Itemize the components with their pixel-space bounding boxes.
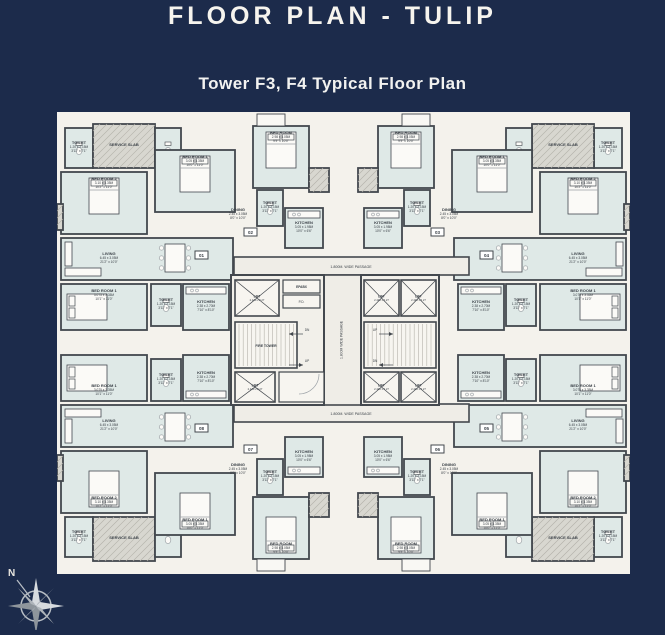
dining-table-icon <box>165 413 185 441</box>
pillow-icon <box>69 296 75 306</box>
room-label-bedroom1: 10'0" x 11'0" <box>186 163 203 167</box>
room-label-service_slab: SERVICE SLAB <box>548 535 578 540</box>
lift-label: 2.440 x 2.27 <box>248 387 263 391</box>
room-label-bedroom1b: 10'1" x 11'0" <box>95 392 112 396</box>
toilet-wc-icon <box>516 536 522 543</box>
pillow-icon <box>69 308 75 318</box>
passage-label-bottom: 1.800M. WIDE PASSAGE <box>330 412 372 416</box>
chair-icon <box>186 435 190 439</box>
unit-badge-number: 05 <box>484 426 490 431</box>
room-label-living: 21'2" x 10'0" <box>569 427 586 431</box>
dining-table-icon <box>502 413 522 441</box>
room-label-kitchen: 10'0" x 6'6" <box>296 458 312 462</box>
room-label-bedroom1b: 10'1" x 11'0" <box>95 297 112 301</box>
chair-icon <box>496 266 500 270</box>
room-label-dining: 8'0" x 10'0" <box>230 216 246 220</box>
room-label-living: 21'2" x 10'0" <box>100 427 117 431</box>
compass-icon <box>4 570 64 630</box>
pillow-icon <box>612 379 618 389</box>
chair-icon <box>523 435 527 439</box>
lift-label: LIFT <box>378 295 385 299</box>
compass-north-label: N <box>8 568 15 579</box>
dining-table-icon <box>165 244 185 272</box>
chair-icon <box>186 256 190 260</box>
room-label-bedroom1b: 10'1" x 11'0" <box>574 392 591 396</box>
passage-label-top: 1.800M. WIDE PASSAGE <box>330 265 372 269</box>
chair-icon <box>159 435 163 439</box>
room-label-service_slab: SERVICE SLAB <box>109 142 139 147</box>
chair-icon <box>159 256 163 260</box>
room-label-bedroom2: 10'2" x 11'0" <box>574 185 591 189</box>
core-lobby <box>279 372 324 402</box>
sofa-icon <box>65 409 101 417</box>
kitchen-counter-icon <box>461 287 501 294</box>
unit-badge-number: 06 <box>435 447 441 452</box>
chair-icon <box>159 266 163 270</box>
lift-label: LIFT <box>415 384 422 388</box>
room-label-toilet: 3'11" x 7'1" <box>409 478 424 482</box>
chair-icon <box>523 415 527 419</box>
toilet-wc-icon <box>165 536 171 543</box>
room <box>402 114 430 126</box>
basin-icon <box>165 142 171 146</box>
room-label-bedroom2: 10'2" x 11'0" <box>95 185 112 189</box>
sofa-icon <box>586 409 622 417</box>
room-label-bedroom_inner: 9'9" x 10'0" <box>273 139 289 143</box>
lift-label: 2.440 x 2.27 <box>411 387 426 391</box>
room-label-bedroom2: 10'2" x 11'0" <box>95 504 112 508</box>
chair-icon <box>496 435 500 439</box>
sofa-icon <box>65 419 72 443</box>
unit-badge-number: 02 <box>248 230 254 235</box>
room-label-dining: 8'0" x 10'0" <box>441 216 457 220</box>
lift-label: 2.440 x 2.27 <box>411 298 426 302</box>
unit-badge-number: 01 <box>199 253 205 258</box>
page-title: FLOOR PLAN - TULIP <box>0 0 665 31</box>
room-label-kitchen_b: 7'10" x 8'10" <box>472 308 489 312</box>
room-label-living: 21'2" x 10'0" <box>100 260 117 264</box>
room-label-toilet: 3'11" x 7'1" <box>262 478 277 482</box>
lift-label: 2.440 x 2.27 <box>250 298 265 302</box>
chair-icon <box>496 425 500 429</box>
dn-label: DN <box>373 359 378 363</box>
room-label-kitchen_b: 7'10" x 8'10" <box>472 379 489 383</box>
dining-table-icon <box>502 244 522 272</box>
room-label-dining: 8'0" x 10'0" <box>441 471 457 475</box>
room-label-kitchen: 10'0" x 6'6" <box>375 229 391 233</box>
dn-label: DN <box>305 328 310 332</box>
page-subtitle: Tower F3, F4 Typical Floor Plan <box>0 74 665 94</box>
compass-rose: N <box>4 570 64 630</box>
chair-icon <box>496 256 500 260</box>
fire-tower-label: FIRE TOWER <box>255 344 277 348</box>
room-label-kitchen: 10'0" x 6'6" <box>296 229 312 233</box>
chair-icon <box>186 425 190 429</box>
room-label-service_slab: SERVICE SLAB <box>109 535 139 540</box>
room-label-living: 21'2" x 10'0" <box>569 260 586 264</box>
kitchen-counter-icon <box>186 287 226 294</box>
sofa-icon <box>586 268 622 276</box>
chair-icon <box>186 415 190 419</box>
room-label-bedroom1: 10'0" x 11'0" <box>186 526 203 530</box>
chair-icon <box>496 246 500 250</box>
chair-icon <box>186 246 190 250</box>
sofa-icon <box>616 419 623 443</box>
kitchen-counter-icon <box>186 391 226 398</box>
room-label-toilet: 3'11" x 7'1" <box>71 538 86 542</box>
sofa-icon <box>65 242 72 266</box>
room-label-bedroom_inner: 9'9" x 10'0" <box>398 550 414 554</box>
room-label-bedroom1: 10'0" x 11'0" <box>483 163 500 167</box>
unit-badge-number: 07 <box>248 447 254 452</box>
up-label: UP <box>373 328 377 332</box>
lift-label: 2.440 x 2.27 <box>374 298 389 302</box>
chair-icon <box>523 266 527 270</box>
pd-label: P.D. <box>299 300 305 304</box>
kitchen-counter-icon <box>461 391 501 398</box>
room-label-toilet: 3'11" x 7'1" <box>158 306 173 310</box>
unit-badge-number: 04 <box>484 253 490 258</box>
sofa-icon <box>616 242 623 266</box>
room-label-bedroom2: 10'2" x 11'0" <box>574 504 591 508</box>
chair-icon <box>523 425 527 429</box>
lift-label: LIFT <box>254 295 261 299</box>
lift-label: LIFT <box>252 384 259 388</box>
chair-icon <box>159 246 163 250</box>
room-label-toilet: 3'11" x 7'1" <box>513 381 528 385</box>
floor-plan-drawing: TOILET1.20 x 2.15M3'11" x 7'1"SERVICE SL… <box>57 112 630 574</box>
chair-icon <box>186 266 190 270</box>
room <box>402 559 430 571</box>
basin-icon <box>516 142 522 146</box>
unit-badge-number: 03 <box>435 230 441 235</box>
room-label-kitchen: 10'0" x 6'6" <box>375 458 391 462</box>
room <box>257 559 285 571</box>
floor-plan-panel: TOILET1.20 x 2.15M3'11" x 7'1"SERVICE SL… <box>57 112 630 574</box>
pillow-icon <box>69 367 75 377</box>
pillow-icon <box>612 367 618 377</box>
room-label-toilet: 3'11" x 7'1" <box>513 306 528 310</box>
room-label-bedroom_inner: 9'9" x 10'0" <box>398 139 414 143</box>
room-label-service_slab: SERVICE SLAB <box>548 142 578 147</box>
unit-badge-number: 08 <box>199 426 205 431</box>
room-label-toilet: 3'11" x 7'1" <box>600 149 615 153</box>
up-label: UP <box>305 359 309 363</box>
lift-label: LIFT <box>415 295 422 299</box>
chair-icon <box>159 415 163 419</box>
room-label-toilet: 3'11" x 7'1" <box>262 209 277 213</box>
room <box>257 114 285 126</box>
chair-icon <box>523 256 527 260</box>
chair-icon <box>523 246 527 250</box>
room-label-toilet: 3'11" x 7'1" <box>71 149 86 153</box>
room-label-dining: 8'0" x 10'0" <box>230 471 246 475</box>
room-label-bedroom_inner: 9'9" x 10'0" <box>273 550 289 554</box>
chair-icon <box>159 425 163 429</box>
sofa-icon <box>65 268 101 276</box>
pillow-icon <box>612 308 618 318</box>
lift-label: 2.440 x 2.27 <box>374 387 389 391</box>
room-label-bedroom1: 10'0" x 11'0" <box>483 526 500 530</box>
chair-icon <box>496 415 500 419</box>
room-label-bedroom1b: 10'1" x 11'0" <box>574 297 591 301</box>
pillow-icon <box>612 296 618 306</box>
room-label-toilet: 3'11" x 7'1" <box>158 381 173 385</box>
room-label-toilet: 3'11" x 7'1" <box>600 538 615 542</box>
epabx-label: EPABX <box>296 285 308 289</box>
room-label-toilet: 3'11" x 7'1" <box>409 209 424 213</box>
room-label-kitchen_b: 7'10" x 8'10" <box>197 308 214 312</box>
passage-label-center: 1.800M WIDE PASSAGE <box>340 320 344 359</box>
lift-label: LIFT <box>378 384 385 388</box>
pillow-icon <box>69 379 75 389</box>
room-label-kitchen_b: 7'10" x 8'10" <box>197 379 214 383</box>
